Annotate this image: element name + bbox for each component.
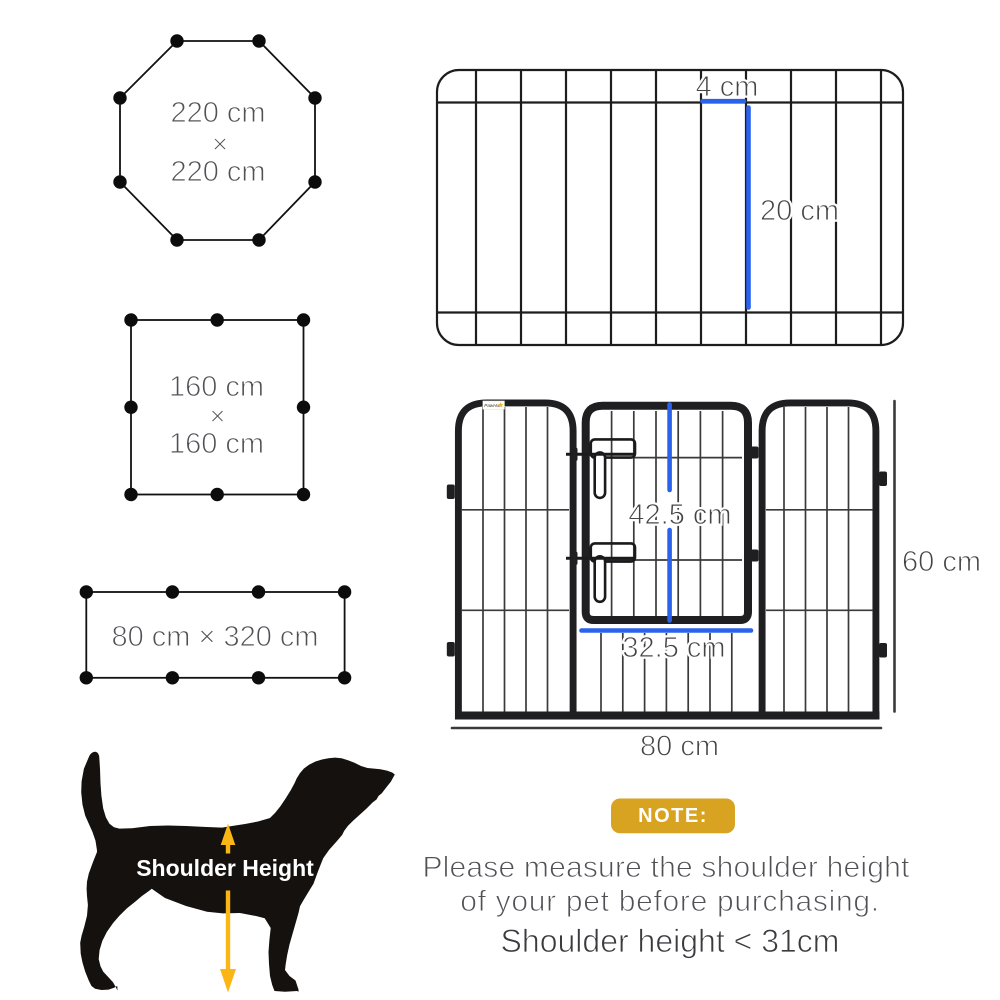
svg-text:4 cm: 4 cm (696, 71, 759, 103)
svg-text:×: × (210, 401, 226, 431)
svg-text:Shoulder Height: Shoulder Height (136, 855, 314, 881)
svg-text:160 cm: 160 cm (169, 371, 264, 403)
svg-text:60 cm: 60 cm (902, 546, 981, 578)
svg-text:Shoulder height < 31cm: Shoulder height < 31cm (501, 923, 840, 959)
svg-text:NOTE:: NOTE: (638, 805, 708, 827)
svg-text:PawHut: PawHut (484, 403, 501, 408)
svg-text:of your pet before purchasing.: of your pet before purchasing. (460, 885, 880, 918)
svg-text:Please measure the shoulder he: Please measure the shoulder height (422, 851, 910, 884)
svg-text:160 cm: 160 cm (169, 428, 264, 460)
svg-text:80 cm × 320 cm: 80 cm × 320 cm (111, 621, 318, 653)
svg-text:42.5 cm: 42.5 cm (628, 499, 731, 531)
svg-text:220 cm: 220 cm (170, 97, 265, 129)
svg-text:32.5 cm: 32.5 cm (622, 632, 725, 664)
svg-text:80 cm: 80 cm (640, 731, 719, 763)
svg-text:220 cm: 220 cm (170, 156, 265, 188)
svg-text:×: × (212, 129, 228, 159)
svg-text:20 cm: 20 cm (760, 195, 839, 227)
